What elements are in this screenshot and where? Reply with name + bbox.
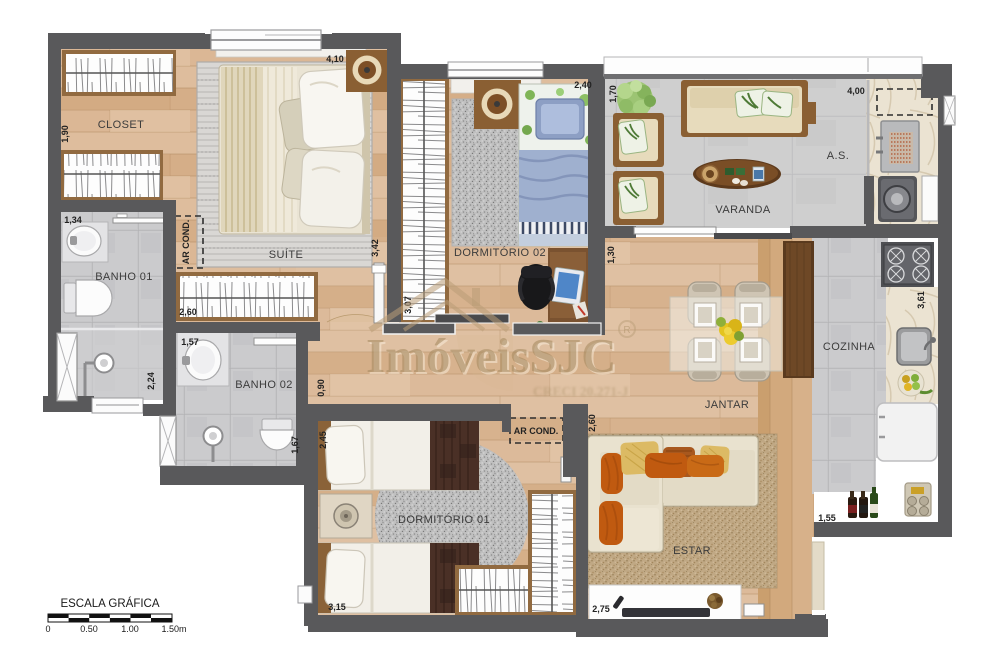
- svg-text:1.50m: 1.50m: [161, 624, 186, 634]
- svg-text:R: R: [623, 325, 630, 336]
- svg-text:1,90: 1,90: [60, 125, 70, 143]
- svg-text:2,60: 2,60: [587, 414, 597, 432]
- svg-text:CLOSET: CLOSET: [98, 119, 144, 131]
- svg-text:2,75: 2,75: [592, 604, 610, 614]
- svg-text:1,55: 1,55: [818, 513, 836, 523]
- svg-text:ESTAR: ESTAR: [673, 545, 711, 557]
- svg-text:2,60: 2,60: [179, 307, 197, 317]
- svg-text:4,10: 4,10: [326, 54, 344, 64]
- svg-text:3,61: 3,61: [916, 291, 926, 309]
- svg-text:4,00: 4,00: [847, 86, 865, 96]
- svg-text:ImóveisSJC: ImóveisSJC: [366, 328, 616, 383]
- svg-text:DORMITÓRIO 02: DORMITÓRIO 02: [454, 246, 546, 259]
- svg-text:1,57: 1,57: [181, 337, 199, 347]
- svg-text:2,45: 2,45: [318, 431, 328, 449]
- svg-text:JANTAR: JANTAR: [705, 399, 749, 411]
- svg-text:1,70: 1,70: [608, 85, 618, 103]
- svg-text:3,15: 3,15: [328, 602, 346, 612]
- svg-text:3,42: 3,42: [370, 239, 380, 257]
- svg-text:COZINHA: COZINHA: [823, 341, 876, 353]
- svg-text:A.S.: A.S.: [827, 150, 849, 162]
- svg-text:2,40: 2,40: [574, 80, 592, 90]
- svg-text:DORMITÓRIO 01: DORMITÓRIO 01: [398, 513, 490, 526]
- svg-text:VARANDA: VARANDA: [715, 204, 770, 216]
- svg-text:1,67: 1,67: [290, 436, 300, 454]
- svg-text:BANHO 02: BANHO 02: [235, 379, 293, 391]
- svg-text:1,30: 1,30: [606, 246, 616, 264]
- svg-text:AR COND.: AR COND.: [181, 220, 191, 265]
- svg-text:0: 0: [45, 624, 50, 634]
- svg-text:1.00: 1.00: [121, 624, 139, 634]
- svg-text:0,90: 0,90: [316, 379, 326, 397]
- svg-text:1,34: 1,34: [64, 215, 82, 225]
- svg-text:2,24: 2,24: [146, 372, 156, 390]
- svg-text:ESCALA GRÁFICA: ESCALA GRÁFICA: [60, 597, 159, 610]
- svg-text:BANHO 01: BANHO 01: [95, 271, 153, 283]
- svg-text:CRECI 20.271-J: CRECI 20.271-J: [533, 384, 629, 399]
- svg-text:AR COND.: AR COND.: [514, 426, 559, 436]
- svg-text:0.50: 0.50: [80, 624, 98, 634]
- svg-text:SUÍTE: SUÍTE: [269, 248, 303, 261]
